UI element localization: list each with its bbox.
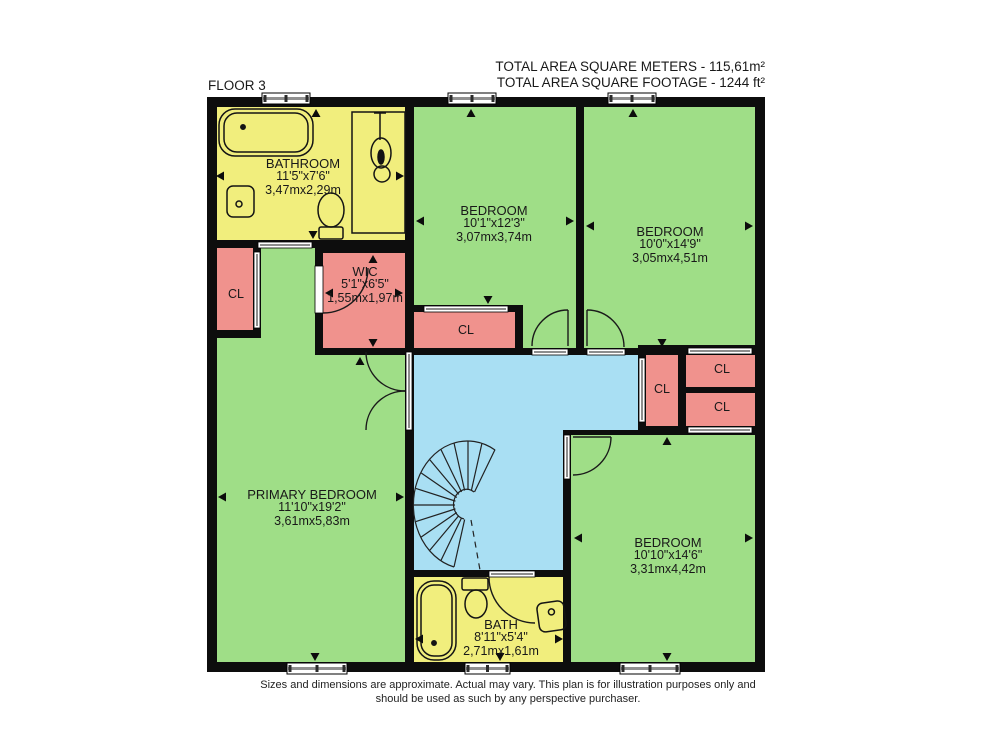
floor-plan-page: FLOOR 3 TOTAL AREA SQUARE METERS - 115,6… [0, 0, 1000, 756]
closet-label-center: CL [458, 323, 474, 337]
bath-tub-drain [432, 641, 436, 645]
room-label-primary-bedroom: PRIMARY BEDROOM 11'10"x19'2" 3,61mx5,83m [247, 488, 377, 528]
closet-label-left: CL [228, 287, 244, 301]
closet-label-upper: CL [714, 362, 730, 376]
closet-label-lower: CL [714, 400, 730, 414]
room-label-bathroom: BATHROOM 11'5"x7'6" 3,47mx2,29m [265, 157, 341, 197]
room-label-bath: BATH 8'11"x5'4" 2,71mx1,61m [463, 618, 539, 658]
room-label-bedroom-top-right: BEDROOM 10'0"x14'9" 3,05mx4,51m [632, 225, 708, 265]
shower-head-center [378, 150, 384, 164]
closet-label-hall: CL [654, 382, 670, 396]
hallway-floor-lower [414, 430, 563, 570]
room-label-wic: WIC 5'1"x6'5" 1,55mx1,97m [327, 265, 403, 305]
disclaimer: Sizes and dimensions are approximate. Ac… [188, 679, 828, 706]
room-label-bedroom-bottom-right: BEDROOM 10'10"x14'6" 3,31mx4,42m [630, 536, 706, 576]
wic-door-leaf [315, 266, 323, 313]
disclaimer-line2: should be used as such by any perspectiv… [188, 693, 828, 707]
disclaimer-line1: Sizes and dimensions are approximate. Ac… [188, 679, 828, 693]
hallway-floor-upper [414, 355, 638, 430]
bathtub-drain [241, 125, 245, 129]
primary-bedroom-strip-floor [261, 248, 315, 338]
room-label-bedroom-top-center: BEDROOM 10'1"x12'3" 3,07mx3,74m [456, 204, 532, 244]
